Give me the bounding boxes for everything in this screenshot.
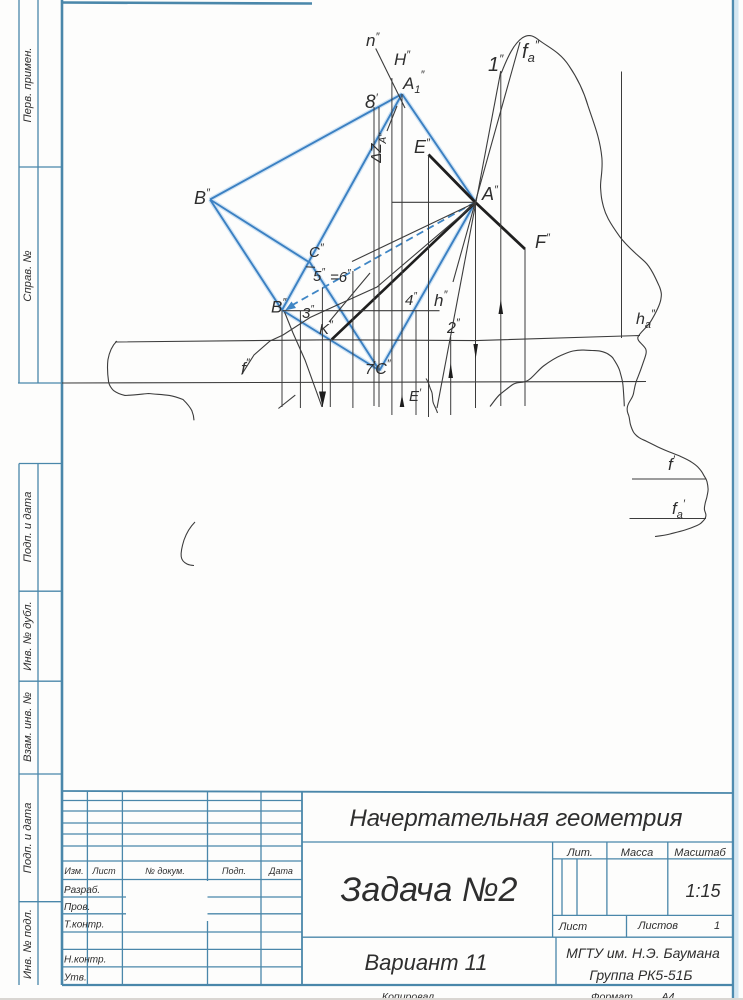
svg-text:МГТУ им. Н.Э. Баумана: МГТУ им. Н.Э. Баумана (566, 945, 720, 961)
svg-text:Инв. № дубл.: Инв. № дубл. (22, 601, 34, 670)
svg-text:Пров.: Пров. (64, 902, 90, 913)
svg-text:Взам. инв. №: Взам. инв. № (22, 692, 34, 762)
svg-text:Группа РК5-51Б: Группа РК5-51Б (589, 967, 692, 983)
svg-text:Перв. примен.: Перв. примен. (22, 47, 34, 122)
svg-text:Утв.: Утв. (63, 973, 87, 984)
svg-text:Лист: Лист (558, 921, 587, 933)
svg-text:1:15: 1:15 (685, 881, 721, 901)
svg-text:Подп. и дата: Подп. и дата (22, 492, 34, 563)
svg-text:Лист: Лист (91, 866, 116, 876)
svg-text:№ докум.: № докум. (145, 866, 185, 876)
svg-text:Изм.: Изм. (64, 866, 83, 876)
svg-text:Т.контр.: Т.контр. (64, 920, 104, 931)
svg-text:Лит.: Лит. (566, 847, 593, 859)
svg-text:Листов: Листов (637, 920, 678, 932)
svg-text:Разраб.: Разраб. (64, 884, 100, 896)
svg-text:Задача №2: Задача №2 (341, 871, 518, 909)
svg-text:Инв. № подл.: Инв. № подл. (22, 909, 34, 979)
svg-text:Вариант 11: Вариант 11 (365, 950, 488, 975)
svg-text:Масштаб: Масштаб (674, 847, 726, 859)
svg-text:Подп.: Подп. (222, 866, 246, 876)
svg-text:Справ. №: Справ. № (22, 250, 34, 301)
svg-text:1: 1 (714, 920, 720, 932)
svg-text:Начертательная геометрия: Начертательная геометрия (349, 805, 682, 832)
svg-text:Н.контр.: Н.контр. (64, 955, 106, 966)
svg-text:Дата: Дата (268, 866, 293, 876)
svg-text:Масса: Масса (621, 847, 654, 859)
svg-text:Подп. и дата: Подп. и дата (22, 803, 34, 874)
